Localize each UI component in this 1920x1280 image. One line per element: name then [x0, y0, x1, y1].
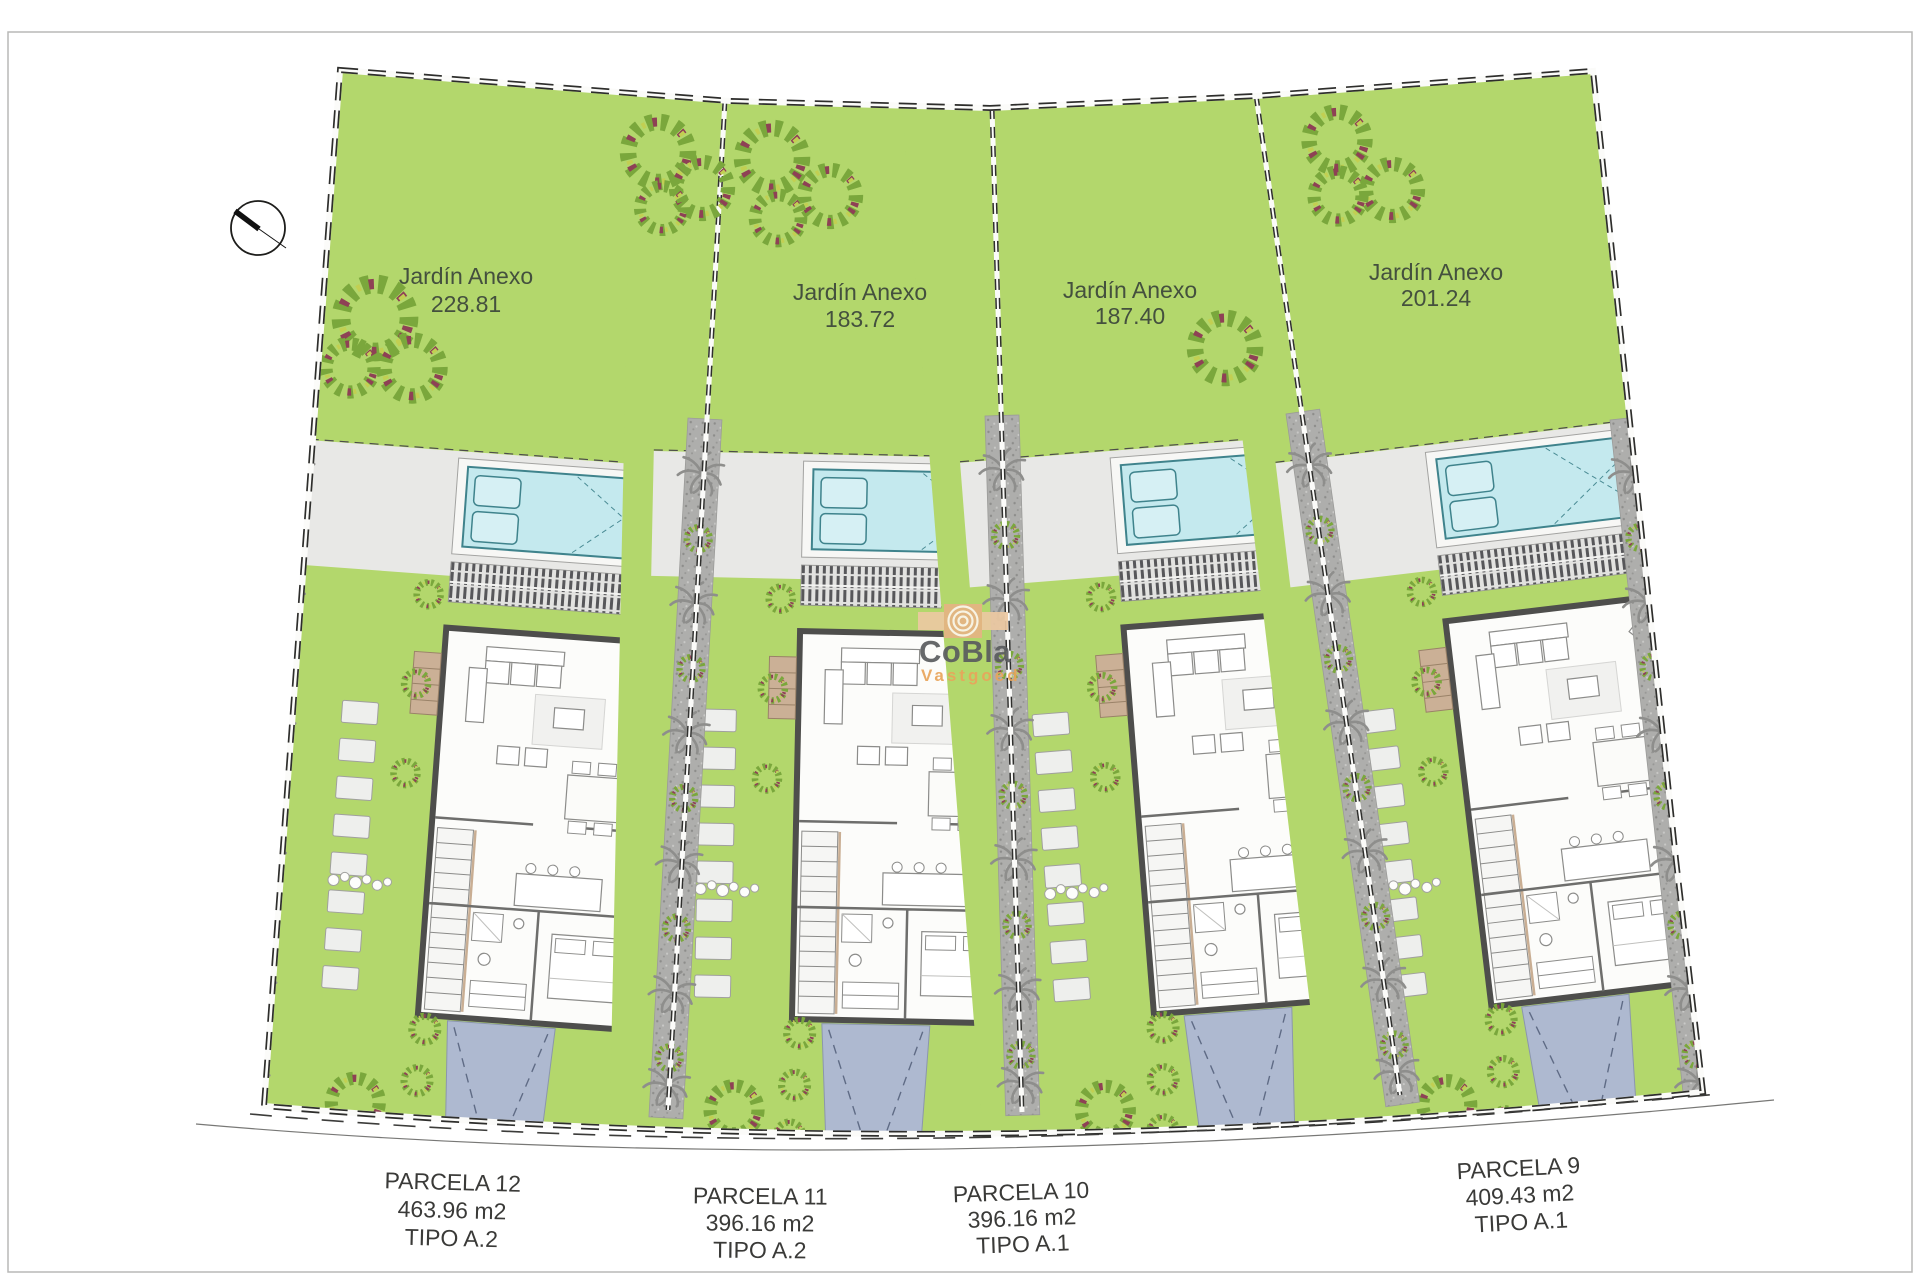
parcel-12-name: PARCELA 12	[384, 1167, 521, 1197]
parcel-11-area: 396.16 m2	[706, 1210, 815, 1237]
compass-icon	[231, 201, 286, 255]
parcel-12-tipo: TIPO A.2	[404, 1224, 498, 1252]
garden-area-1: 228.81	[431, 291, 501, 317]
site-area	[218, 0, 1811, 1280]
parcel-label-10: PARCELA 10 396.16 m2 TIPO A.1	[952, 1177, 1091, 1260]
parcel-label-11: PARCELA 11 396.16 m2 TIPO A.2	[692, 1182, 827, 1263]
parcel-label-9: PARCELA 9 409.43 m2 TIPO A.1	[1456, 1152, 1584, 1238]
parcel-label-12: PARCELA 12 463.96 m2 TIPO A.2	[383, 1167, 521, 1253]
parcel-9-tipo: TIPO A.1	[1474, 1207, 1569, 1238]
watermark-sub: Vastgoed	[921, 666, 1021, 685]
garden-label-1: Jardín Anexo	[399, 263, 533, 289]
watermark-brand: CoBla	[919, 634, 1011, 669]
site-plan-page: Jardín Anexo 228.81 Jardín Anexo 183.72 …	[0, 0, 1920, 1280]
cobla-logo: CoBla Vastgoed	[918, 604, 1021, 685]
garden-area-3: 187.40	[1095, 303, 1165, 329]
garden-area-4: 201.24	[1401, 285, 1472, 311]
parcel-10-area: 396.16 m2	[967, 1203, 1077, 1233]
parcel-12-area: 463.96 m2	[397, 1196, 506, 1225]
garden-area-2: 183.72	[825, 306, 895, 332]
site-plan-drawing: Jardín Anexo 228.81 Jardín Anexo 183.72 …	[0, 0, 1920, 1280]
parcel-11-tipo: TIPO A.2	[713, 1237, 807, 1264]
garden-label-3: Jardín Anexo	[1063, 277, 1197, 303]
parcel-10-tipo: TIPO A.1	[976, 1229, 1070, 1258]
parcel-11-name: PARCELA 11	[693, 1182, 828, 1209]
garden-label-4: Jardín Anexo	[1369, 259, 1503, 285]
garden-label-2: Jardín Anexo	[793, 279, 927, 305]
